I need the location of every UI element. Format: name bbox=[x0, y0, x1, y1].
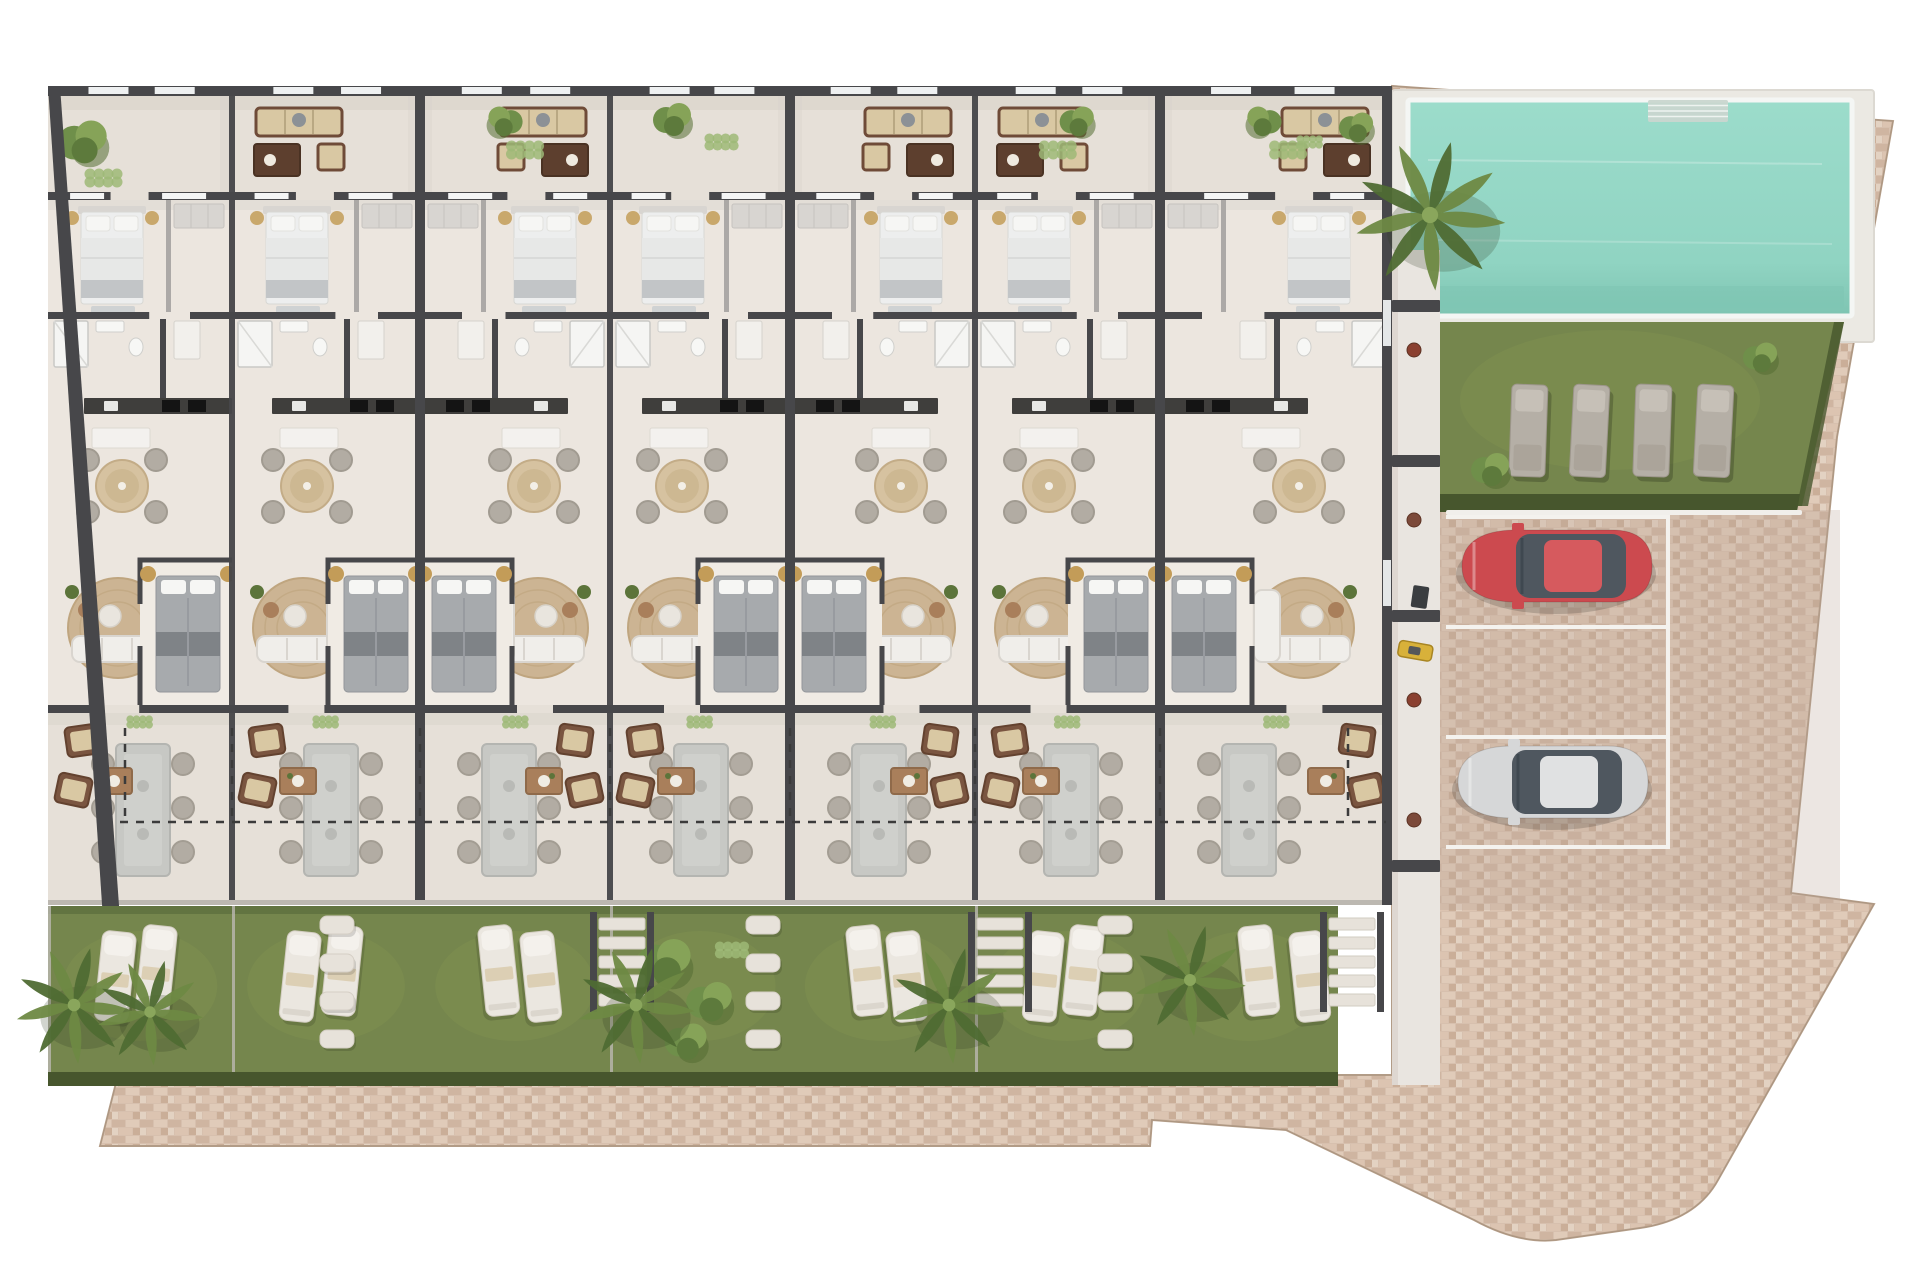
unit-4 bbox=[610, 96, 794, 905]
lounge-armchair bbox=[248, 723, 286, 757]
terrace-dining-set bbox=[650, 744, 752, 876]
terrace-dining-set bbox=[1198, 744, 1300, 876]
lounge-armchair bbox=[565, 772, 604, 808]
pool-lounger bbox=[1693, 384, 1738, 483]
car-red bbox=[1456, 523, 1656, 614]
lounge-armchair bbox=[1338, 723, 1376, 757]
coffee-table bbox=[1308, 768, 1344, 794]
lounge-armchair bbox=[556, 723, 594, 757]
lounge-armchair bbox=[981, 772, 1020, 808]
lounge-armchair bbox=[238, 772, 277, 808]
lounge-armchair bbox=[54, 772, 93, 808]
lounge-armchair bbox=[991, 723, 1029, 757]
lounge-armchair bbox=[626, 723, 664, 757]
unit-6 bbox=[975, 96, 1164, 905]
coffee-table bbox=[280, 768, 316, 794]
pool-lounger bbox=[1633, 384, 1676, 482]
terrace-dining-set bbox=[1020, 744, 1122, 876]
car-silver bbox=[1452, 739, 1652, 830]
unit-7 bbox=[1156, 96, 1392, 905]
pool-lounger bbox=[1509, 384, 1552, 482]
coffee-table bbox=[526, 768, 562, 794]
coffee-table bbox=[891, 768, 927, 794]
private-gardens bbox=[48, 906, 1338, 1086]
terrace-dining-set bbox=[458, 744, 560, 876]
terrace-dining-set bbox=[280, 744, 382, 876]
lounge-armchair bbox=[616, 772, 655, 808]
unit-2 bbox=[232, 96, 424, 905]
pool-lounger bbox=[1569, 384, 1614, 483]
unit-3 bbox=[416, 96, 610, 905]
side-corridor bbox=[1392, 250, 1440, 1085]
lounge-armchair bbox=[1347, 772, 1386, 808]
terrace-dining-set bbox=[828, 744, 930, 876]
floor-plan-page bbox=[0, 0, 1920, 1280]
lawn-hedge bbox=[1432, 494, 1800, 512]
garden-stair-entry bbox=[1320, 912, 1384, 1012]
lounge-armchair bbox=[930, 772, 969, 808]
coffee-table bbox=[658, 768, 694, 794]
sunbathing-lawn bbox=[1432, 322, 1844, 515]
unit-3-garden bbox=[420, 906, 610, 1086]
pool-steps bbox=[1648, 100, 1728, 122]
coffee-table bbox=[1023, 768, 1059, 794]
unit-5 bbox=[786, 96, 975, 905]
floor-plan-rendering bbox=[0, 0, 1920, 1280]
lounge-armchair bbox=[921, 723, 959, 757]
